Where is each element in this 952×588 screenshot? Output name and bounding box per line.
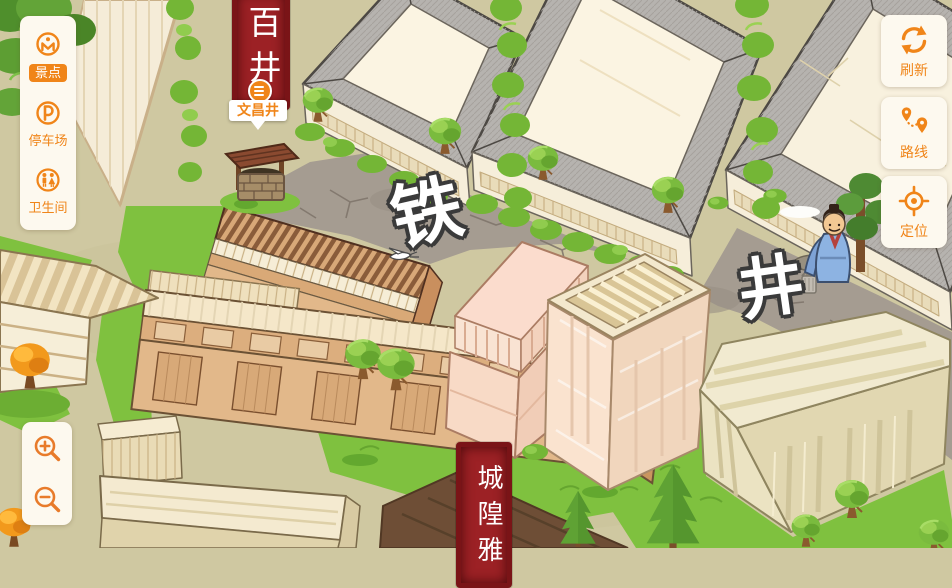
street-label-jing: 井	[734, 250, 809, 325]
refresh-icon	[897, 23, 931, 57]
poi-filter-panel: 景点 停车场 卫生间	[20, 16, 76, 230]
map-app: 铁 井 百井 城隍雅 文昌井 景点 停车场 卫生间	[0, 0, 952, 548]
zoom-in-button[interactable]	[30, 431, 64, 465]
zoom-controls	[22, 422, 72, 525]
route-icon	[897, 105, 931, 139]
locate-icon	[897, 184, 931, 218]
sidebar-item-parking[interactable]: 停车场	[20, 97, 76, 149]
sidebar-item-scenic-spots[interactable]: 景点	[20, 28, 76, 82]
banner-bottom: 城隍雅	[456, 442, 512, 588]
pink-building-right	[545, 254, 710, 490]
tool-button-label: 刷新	[900, 60, 928, 80]
route-button[interactable]: 路线	[881, 97, 947, 169]
tool-button-label: 路线	[900, 142, 928, 162]
zoom-out-icon	[31, 483, 63, 515]
zoom-in-icon	[31, 432, 63, 464]
tool-button-label: 定位	[900, 221, 928, 241]
sidebar-item-restroom[interactable]: 卫生间	[20, 164, 76, 216]
refresh-button[interactable]: 刷新	[881, 15, 947, 87]
restroom-icon	[32, 164, 64, 196]
poi-label[interactable]: 文昌井	[229, 100, 287, 121]
locate-button[interactable]: 定位	[881, 176, 947, 248]
sidebar-item-label: 景点	[29, 64, 67, 82]
sidebar-item-label: 卫生间	[28, 200, 67, 216]
zoom-out-button[interactable]	[30, 482, 64, 516]
sidebar-item-label: 停车场	[28, 133, 67, 149]
scenic-spot-icon	[32, 28, 64, 60]
parking-icon	[32, 97, 64, 129]
